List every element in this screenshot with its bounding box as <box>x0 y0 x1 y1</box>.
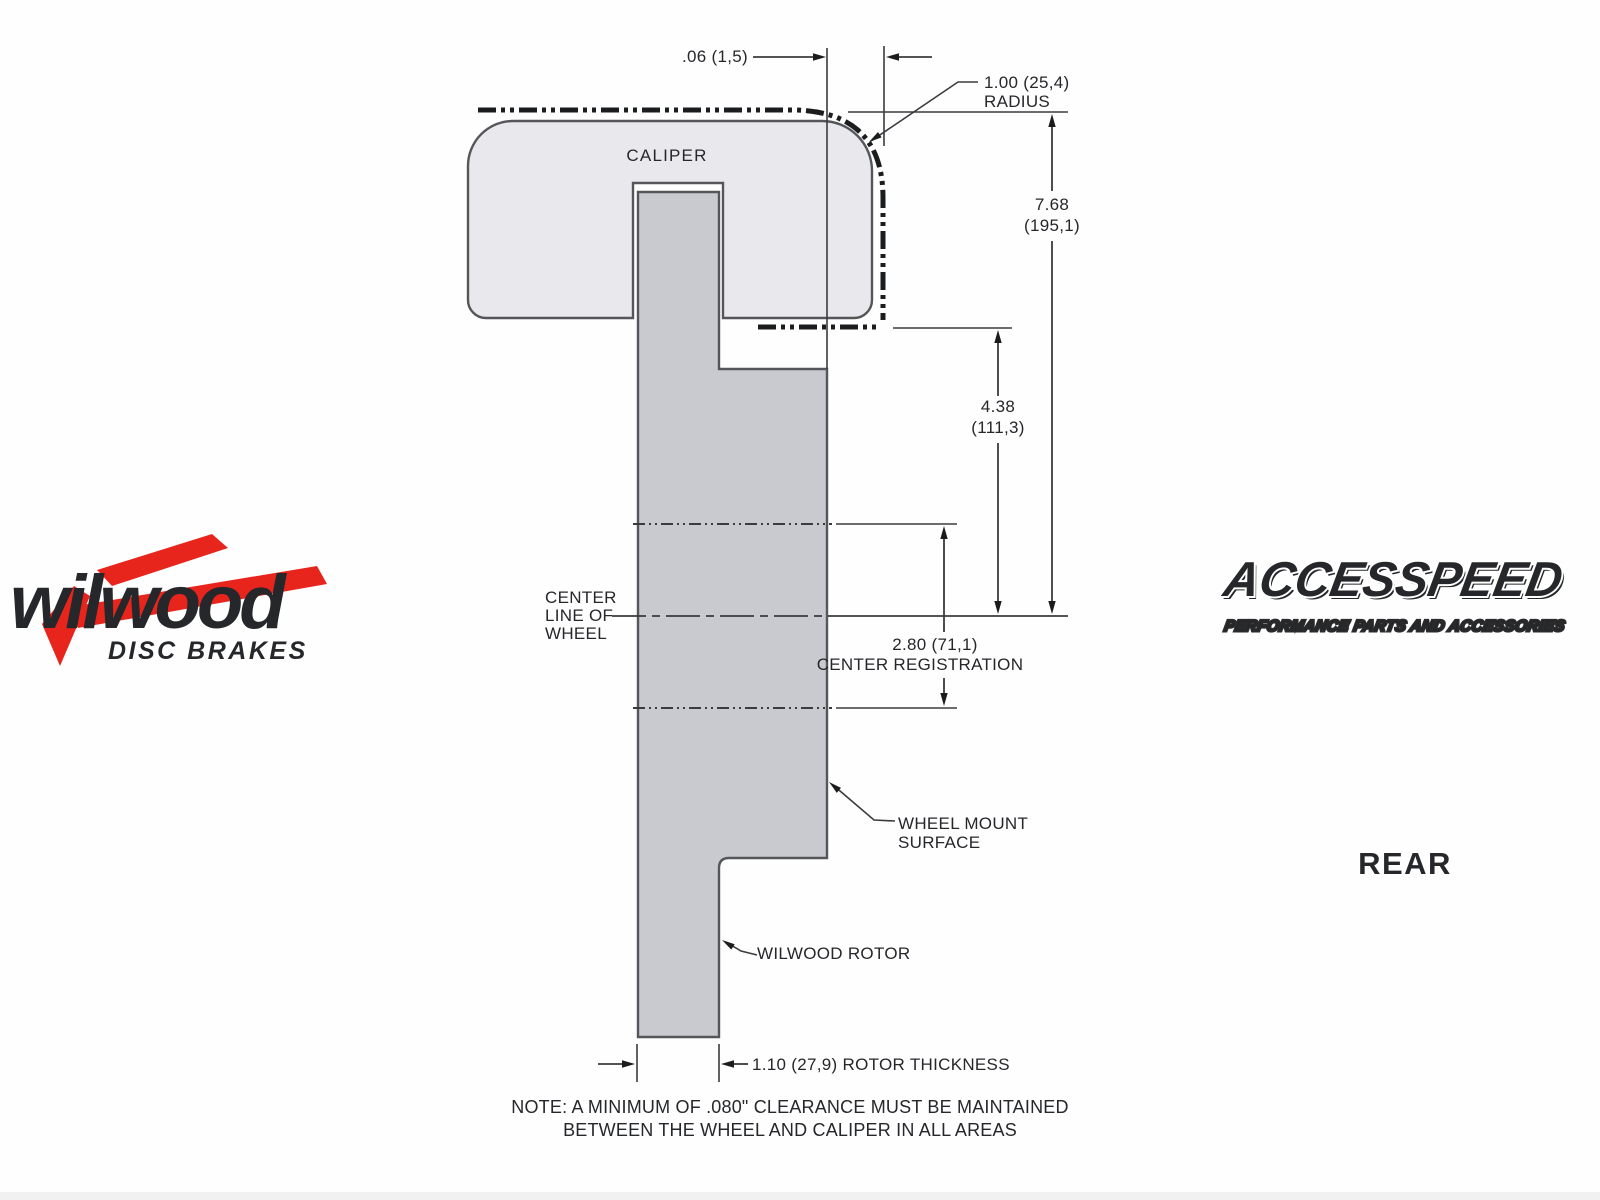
rotor-label: WILWOOD ROTOR <box>757 944 910 963</box>
brake-dimension-drawing: .06 (1,5) 1.00 (25,4) RADIUS 7.68 (195,1… <box>0 0 1600 1200</box>
wheel-mount-label-2: SURFACE <box>898 833 980 852</box>
drawing-canvas: .06 (1,5) 1.00 (25,4) RADIUS 7.68 (195,1… <box>0 0 1600 1200</box>
accesspeed-tagline: PERFORMANCE PARTS AND ACCESSORIES <box>1223 618 1567 635</box>
bottom-strip <box>0 1192 1600 1200</box>
wilwood-logo: wilwood DISC BRAKES <box>10 534 327 666</box>
wheel-mount-leader-line <box>833 785 895 821</box>
registration-dim-word: CENTER REGISTRATION <box>817 655 1024 674</box>
offset-arrow-right <box>813 53 826 61</box>
depth-arrow-down <box>994 601 1001 614</box>
wilwood-wordmark: wilwood <box>10 560 287 645</box>
height-arrow-down <box>1048 601 1055 614</box>
centerline-label-2: LINE OF <box>545 606 613 625</box>
wheel-mount-label-1: WHEEL MOUNT <box>898 814 1028 833</box>
wilwood-tagline: DISC BRAKES <box>108 637 308 665</box>
registration-arrow-down <box>940 693 947 706</box>
registration-arrow-up <box>940 526 947 539</box>
accesspeed-wordmark: ACCESSPEED <box>1218 552 1567 607</box>
centerline-label-3: WHEEL <box>545 624 607 643</box>
registration-dim-value: 2.80 (71,1) <box>892 635 978 654</box>
height-arrow-up <box>1048 114 1055 127</box>
depth-dim-metric: (111,3) <box>971 418 1024 437</box>
height-dim-metric: (195,1) <box>1024 216 1080 235</box>
radius-dim-word: RADIUS <box>984 92 1050 111</box>
height-dim-value: 7.68 <box>1035 195 1069 214</box>
thickness-arrow-right <box>622 1060 635 1067</box>
depth-dim-value: 4.38 <box>981 397 1015 416</box>
thickness-arrow-left <box>721 1060 734 1067</box>
radius-leader-arrow <box>869 132 882 142</box>
note-line-2: BETWEEN THE WHEEL AND CALIPER IN ALL ARE… <box>563 1120 1017 1140</box>
offset-dim-label: .06 (1,5) <box>682 47 748 66</box>
caliper-label: CALIPER <box>626 146 707 165</box>
accesspeed-logo: ACCESSPEED ACCESSPEED PERFORMANCE PARTS … <box>1213 552 1578 635</box>
thickness-dim-label: 1.10 (27,9) ROTOR THICKNESS <box>752 1055 1010 1074</box>
view-label: REAR <box>1358 846 1452 881</box>
centerline-label-1: CENTER <box>545 588 617 607</box>
radius-dim-value: 1.00 (25,4) <box>984 73 1070 92</box>
offset-arrow-left <box>886 53 899 61</box>
rotor-leader-arrow <box>722 940 735 950</box>
note-line-1: NOTE: A MINIMUM OF .080" CLEARANCE MUST … <box>511 1097 1068 1117</box>
depth-arrow-up <box>994 330 1001 343</box>
